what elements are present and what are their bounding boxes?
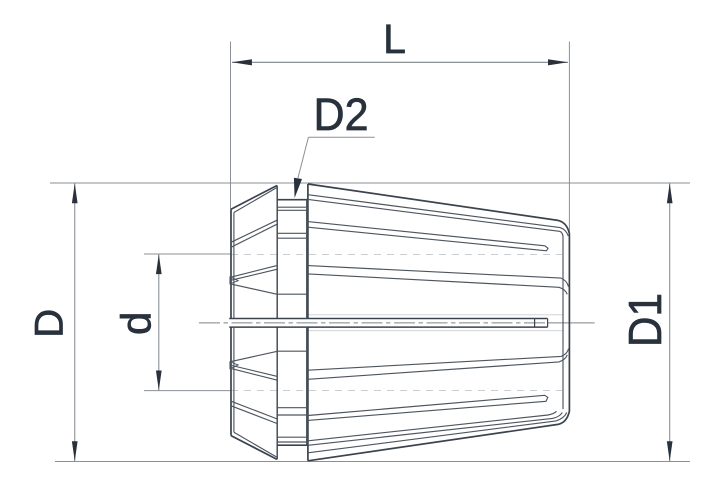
- svg-text:L: L: [383, 16, 406, 62]
- svg-text:D2: D2: [314, 89, 369, 140]
- svg-text:D: D: [27, 309, 71, 338]
- svg-text:d: d: [113, 312, 160, 335]
- svg-text:D1: D1: [619, 293, 671, 347]
